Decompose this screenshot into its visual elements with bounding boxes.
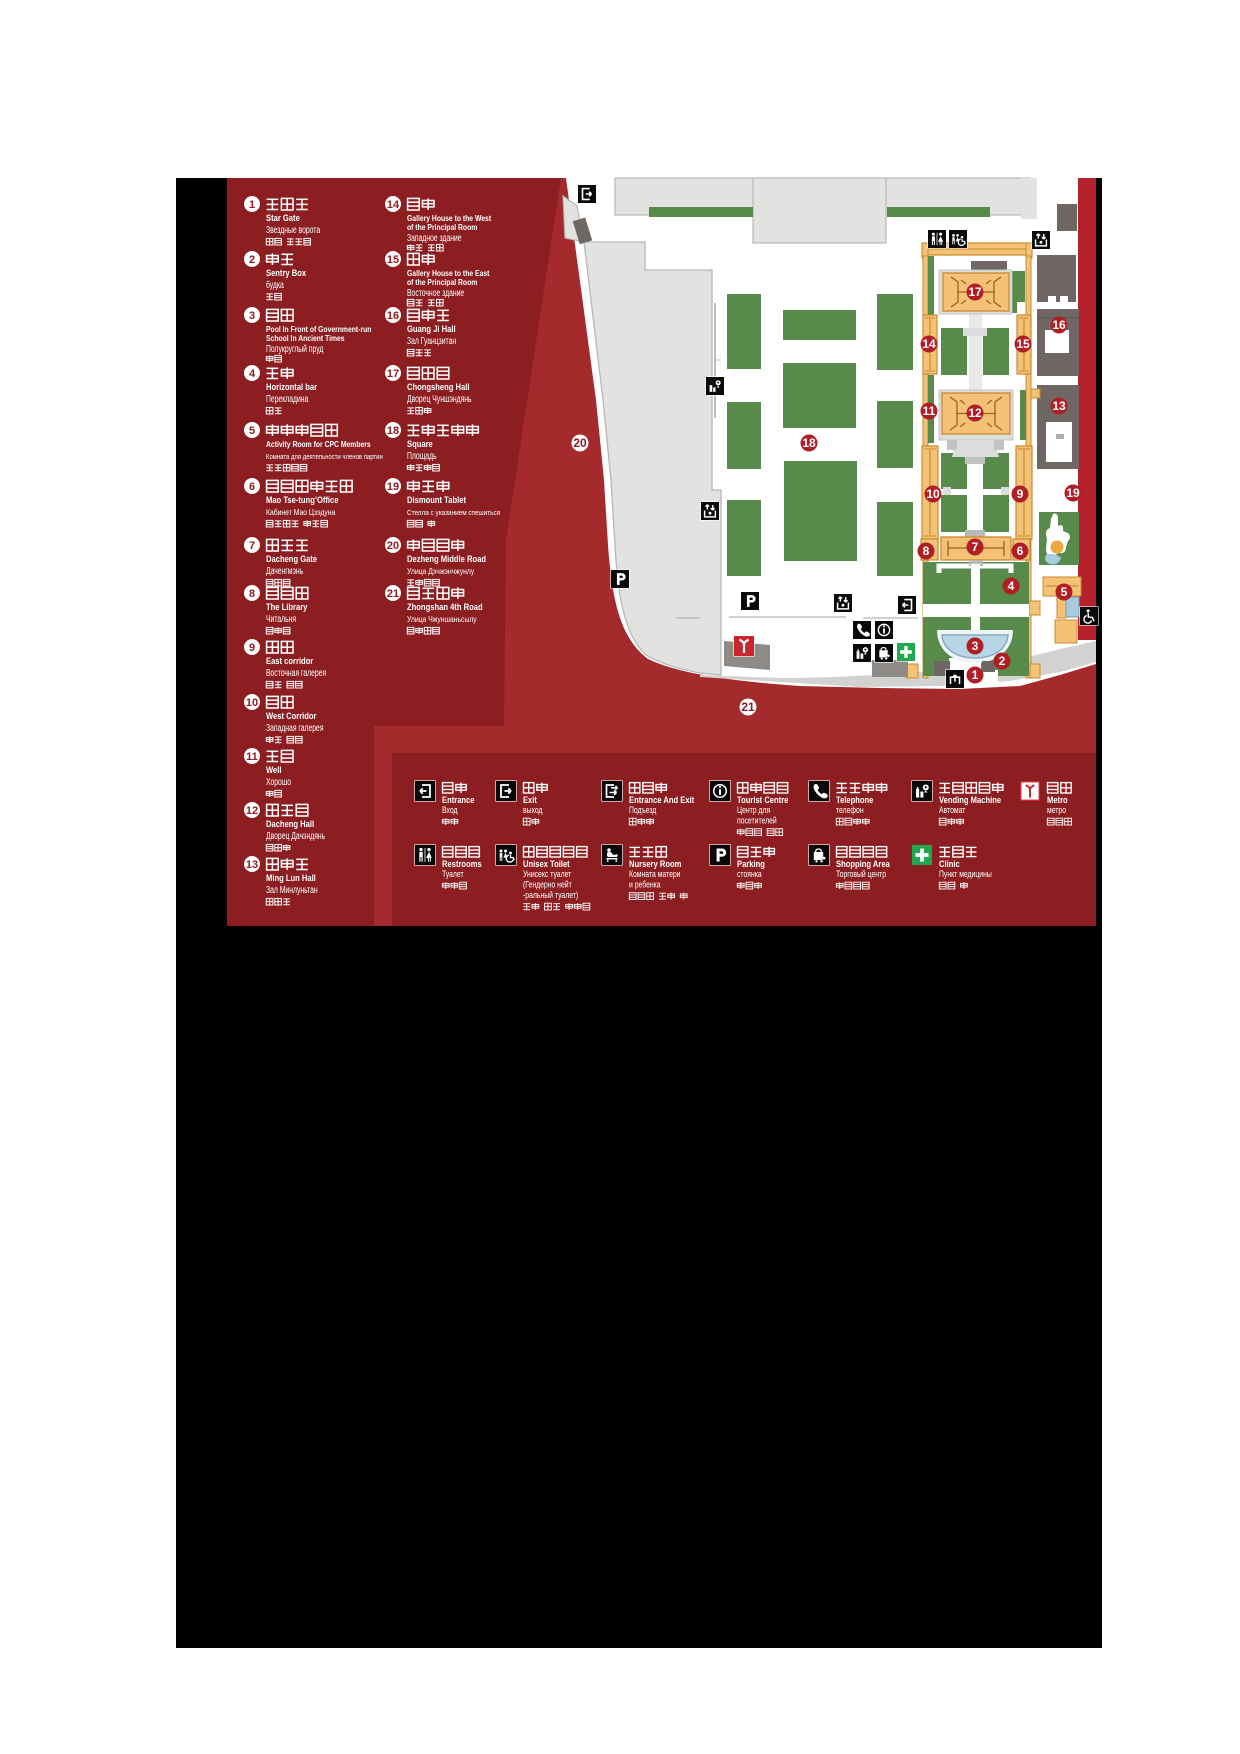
svg-text:Зал Минлуньтан: Зал Минлуньтан: [266, 885, 318, 896]
svg-text:West Corridor: West Corridor: [266, 711, 317, 722]
svg-text:19: 19: [1066, 486, 1080, 500]
svg-text:Square: Square: [407, 439, 433, 450]
svg-text:Дворец Дачэндянь: Дворец Дачэндянь: [266, 831, 325, 842]
svg-text:4: 4: [1008, 579, 1015, 593]
svg-text:7: 7: [249, 540, 255, 552]
svg-text:2: 2: [249, 254, 255, 266]
svg-text:8: 8: [249, 588, 255, 600]
svg-text:15: 15: [1016, 337, 1030, 351]
svg-text:6: 6: [1017, 544, 1024, 558]
svg-text:Dacheng Hall: Dacheng Hall: [266, 819, 314, 830]
svg-text:1: 1: [972, 668, 979, 682]
svg-text:21: 21: [741, 700, 755, 714]
svg-text:Улица Дэчжэнчжунлу: Улица Дэчжэнчжунлу: [407, 567, 474, 576]
svg-text:3: 3: [249, 310, 255, 322]
svg-text:3: 3: [972, 639, 979, 653]
svg-text:9: 9: [249, 642, 255, 654]
svg-text:11: 11: [246, 751, 258, 763]
svg-text:of the Principal Room: of the Principal Room: [407, 277, 478, 287]
svg-text:20: 20: [573, 436, 587, 450]
svg-text:17: 17: [387, 368, 399, 380]
svg-text:Улица Чжуншаньсылу: Улица Чжуншаньсылу: [407, 615, 477, 624]
svg-text:4: 4: [249, 368, 256, 380]
svg-text:10: 10: [246, 697, 258, 709]
svg-text:10: 10: [926, 487, 940, 501]
svg-text:9: 9: [1017, 487, 1024, 501]
svg-text:телефон: телефон: [836, 805, 864, 816]
svg-text:Star Gate: Star Gate: [266, 213, 300, 224]
svg-text:Вход: Вход: [442, 805, 458, 816]
svg-text:18: 18: [387, 425, 399, 437]
svg-text:19: 19: [387, 481, 399, 493]
svg-text:Кабинет Мао Цзэдуна: Кабинет Мао Цзэдуна: [266, 508, 336, 517]
svg-text:и ребенка: и ребенка: [629, 880, 661, 891]
svg-text:5: 5: [249, 425, 255, 437]
svg-text:Подъезд: Подъезд: [629, 805, 657, 816]
svg-text:20: 20: [387, 540, 399, 552]
svg-text:Перекладина: Перекладина: [266, 394, 309, 405]
svg-text:посетителей: посетителей: [737, 816, 777, 827]
svg-text:Sentry Box: Sentry Box: [266, 268, 307, 279]
svg-text:8: 8: [923, 544, 930, 558]
svg-text:Западная галерея: Западная галерея: [266, 723, 324, 734]
svg-text:Horizontal bar: Horizontal bar: [266, 382, 317, 393]
svg-text:17: 17: [968, 285, 982, 299]
svg-text:Chongsheng Hall: Chongsheng Hall: [407, 382, 470, 393]
svg-text:Унисекс туалет: Унисекс туалет: [523, 869, 572, 880]
svg-text:Туалет: Туалет: [442, 869, 464, 880]
svg-text:Guang Ji Hall: Guang Ji Hall: [407, 324, 456, 335]
svg-text:(Гендерно нейт: (Гендерно нейт: [523, 880, 572, 891]
svg-text:East corridor: East corridor: [266, 656, 314, 667]
svg-text:14: 14: [922, 337, 936, 351]
svg-text:Пункт медицины: Пункт медицины: [939, 869, 992, 880]
svg-text:Zhongshan 4th Road: Zhongshan 4th Road: [407, 602, 483, 613]
svg-text:Ming Lun Hall: Ming Lun Hall: [266, 873, 316, 884]
svg-text:14: 14: [387, 199, 400, 211]
svg-text:16: 16: [387, 310, 399, 322]
svg-text:18: 18: [802, 436, 816, 450]
svg-text:-ральный туалет): -ральный туалет): [523, 890, 578, 901]
svg-text:Полукруглый пруд: Полукруглый пруд: [266, 344, 324, 355]
svg-text:Центр для: Центр для: [737, 805, 770, 816]
svg-text:21: 21: [387, 588, 399, 600]
svg-text:Activity Room for CPC Members: Activity Room for CPC Members: [266, 439, 371, 449]
svg-text:School In Ancient Times: School In Ancient Times: [266, 333, 345, 343]
svg-text:13: 13: [1052, 399, 1066, 413]
svg-text:Зал Гуанцзитан: Зал Гуанцзитан: [407, 336, 456, 347]
svg-text:Даченгмэнь: Даченгмэнь: [266, 566, 303, 577]
svg-text:5: 5: [1061, 585, 1068, 599]
svg-text:7: 7: [972, 540, 979, 554]
svg-text:12: 12: [246, 805, 258, 817]
svg-text:Читальня: Читальня: [266, 614, 296, 625]
svg-text:Звездные ворота: Звездные ворота: [266, 225, 320, 236]
svg-text:11: 11: [923, 404, 936, 418]
svg-text:Площадь: Площадь: [407, 451, 437, 462]
svg-text:2: 2: [999, 654, 1006, 668]
svg-text:Комната для деятельности члено: Комната для деятельности членов партии: [266, 454, 383, 461]
svg-text:метро: метро: [1047, 805, 1066, 816]
svg-text:Западное здание: Западное здание: [407, 233, 462, 244]
svg-text:Автомат: Автомат: [939, 805, 966, 816]
svg-text:Дворец Чуншэндянь: Дворец Чуншэндянь: [407, 394, 472, 405]
svg-text:выход: выход: [523, 805, 543, 816]
svg-text:Стелла с указанием спешиться: Стелла с указанием спешиться: [407, 508, 500, 517]
svg-text:Mao Tse-tung’Office: Mao Tse-tung’Office: [266, 495, 339, 506]
svg-text:Dezheng Middle Road: Dezheng Middle Road: [407, 554, 486, 565]
svg-text:16: 16: [1052, 318, 1066, 332]
svg-text:1: 1: [249, 199, 255, 211]
svg-text:6: 6: [249, 481, 255, 493]
svg-text:Комната матери: Комната матери: [629, 869, 681, 880]
svg-text:Восточное здание: Восточное здание: [407, 288, 464, 299]
svg-text:Хорошо: Хорошо: [266, 777, 291, 788]
svg-text:of the Principal Room: of the Principal Room: [407, 222, 478, 232]
svg-text:Dismount Tablet: Dismount Tablet: [407, 495, 467, 506]
svg-text:The Library: The Library: [266, 602, 308, 613]
svg-text:будка: будка: [266, 279, 284, 291]
svg-text:Торговый центр: Торговый центр: [836, 869, 886, 880]
svg-text:стоянка: стоянка: [737, 869, 762, 880]
svg-text:12: 12: [968, 406, 982, 420]
svg-text:15: 15: [387, 254, 399, 266]
svg-text:Well: Well: [266, 765, 282, 776]
svg-text:Dacheng Gate: Dacheng Gate: [266, 554, 317, 565]
svg-text:13: 13: [246, 859, 258, 871]
svg-text:Восточная галерея: Восточная галерея: [266, 668, 326, 679]
